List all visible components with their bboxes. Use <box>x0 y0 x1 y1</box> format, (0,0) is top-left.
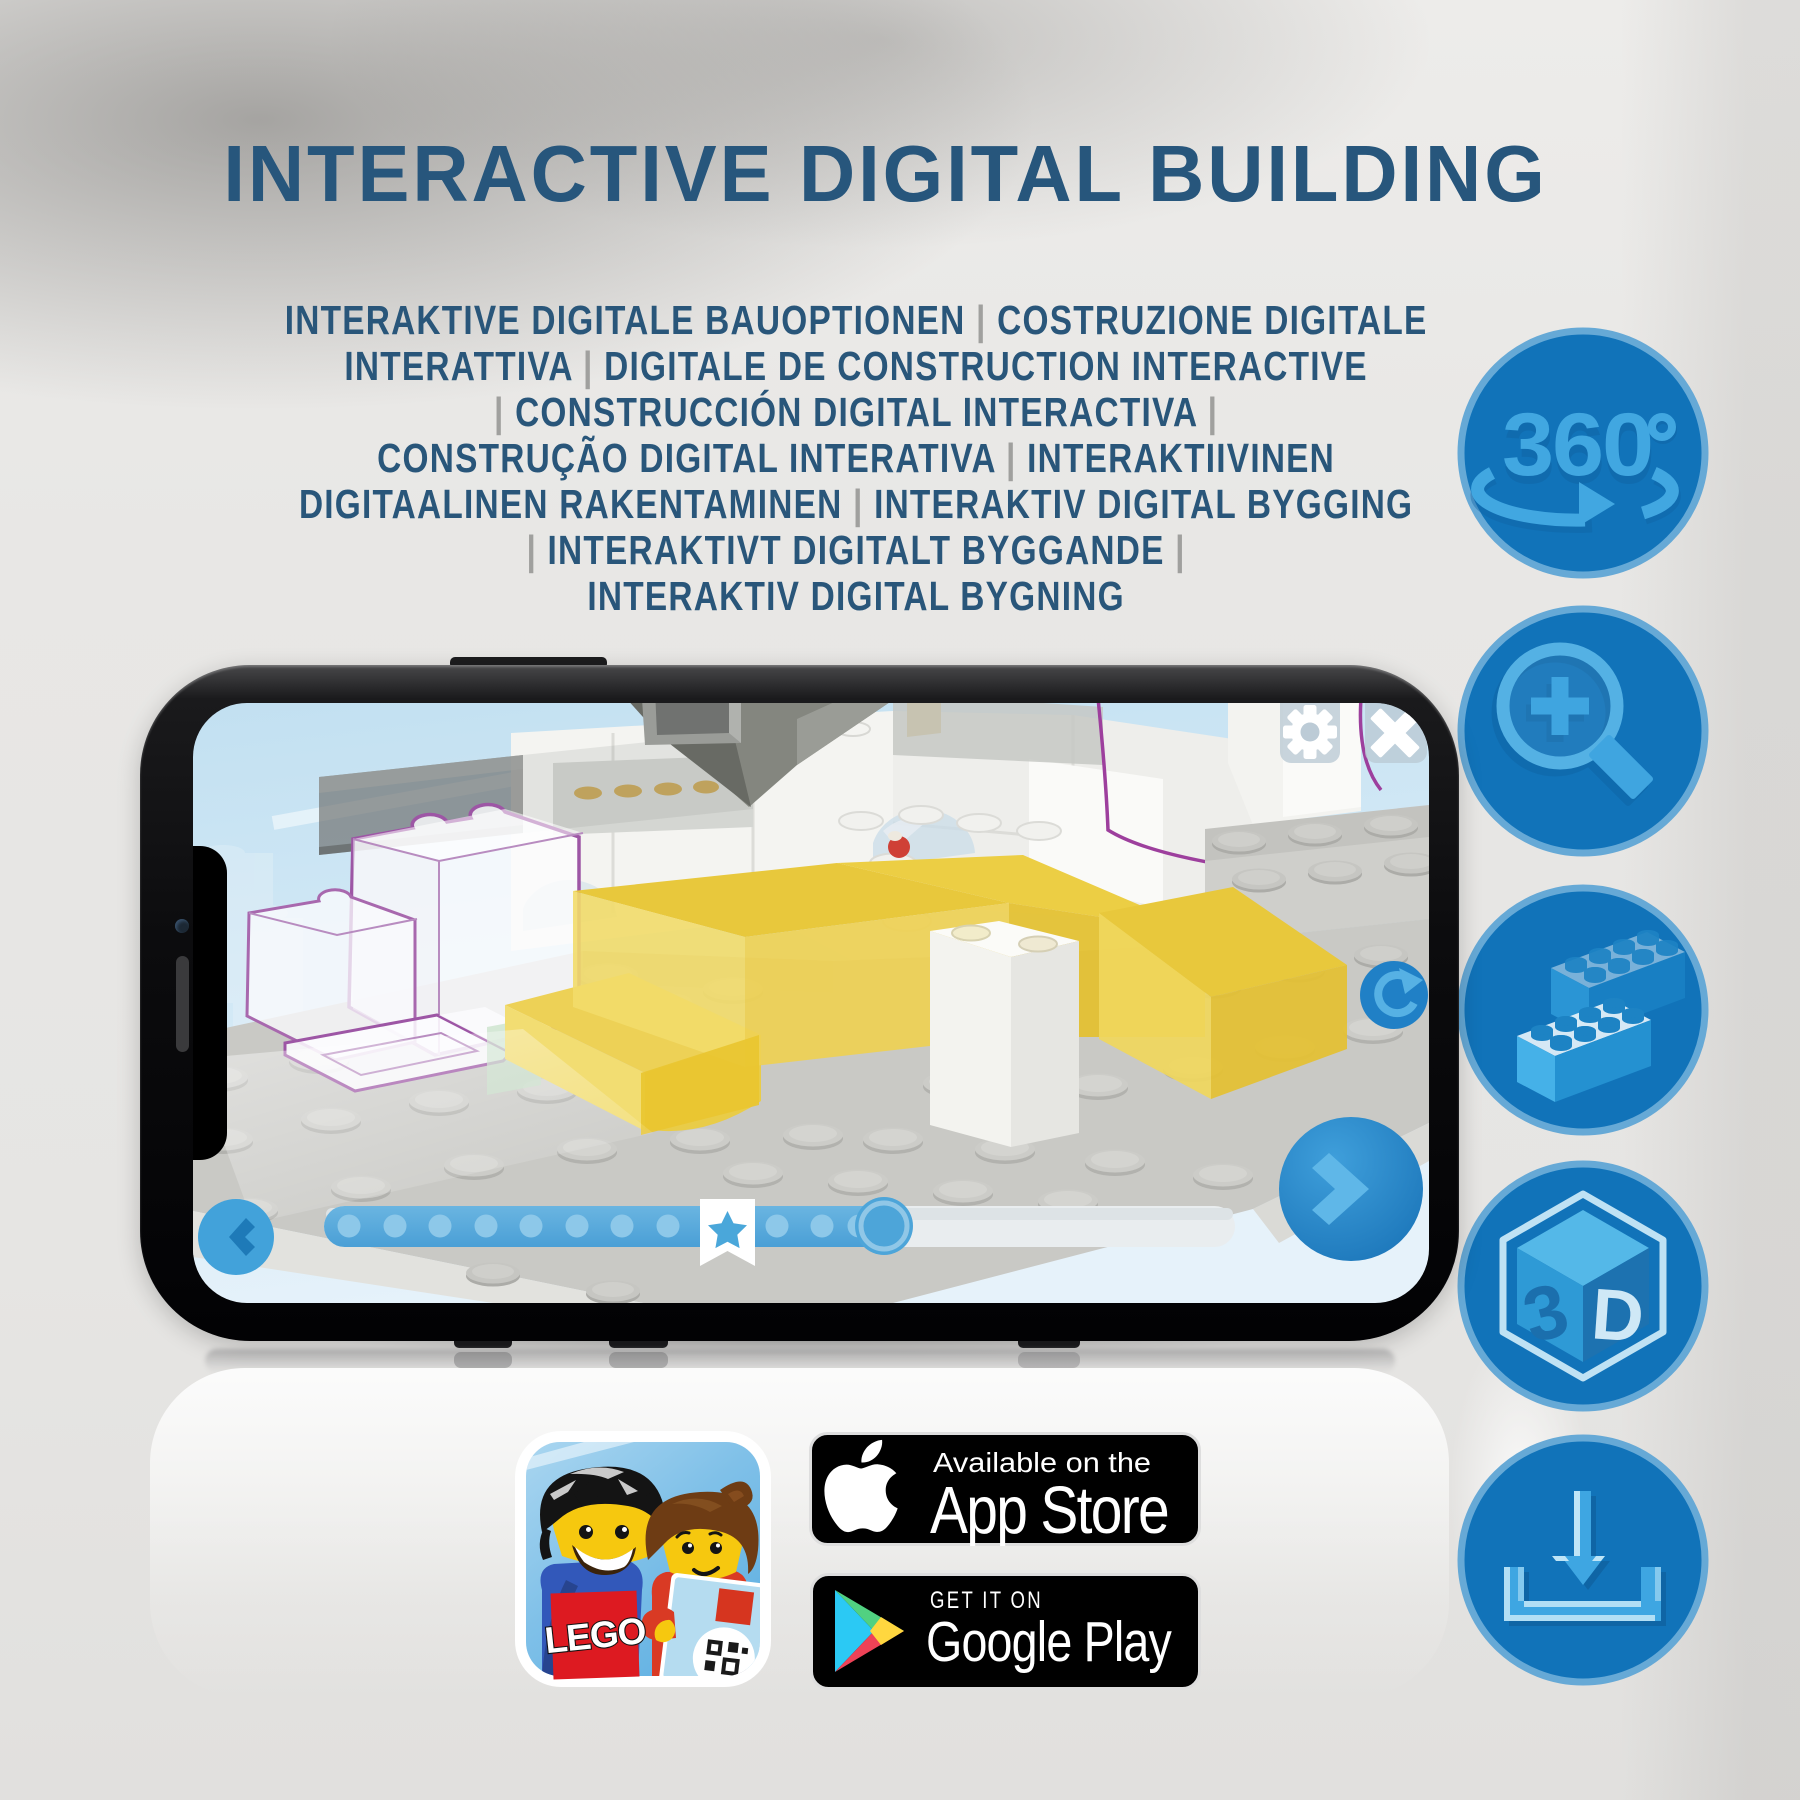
svg-text:Google Play: Google Play <box>926 1610 1172 1674</box>
svg-text:App Store: App Store <box>930 1473 1168 1546</box>
